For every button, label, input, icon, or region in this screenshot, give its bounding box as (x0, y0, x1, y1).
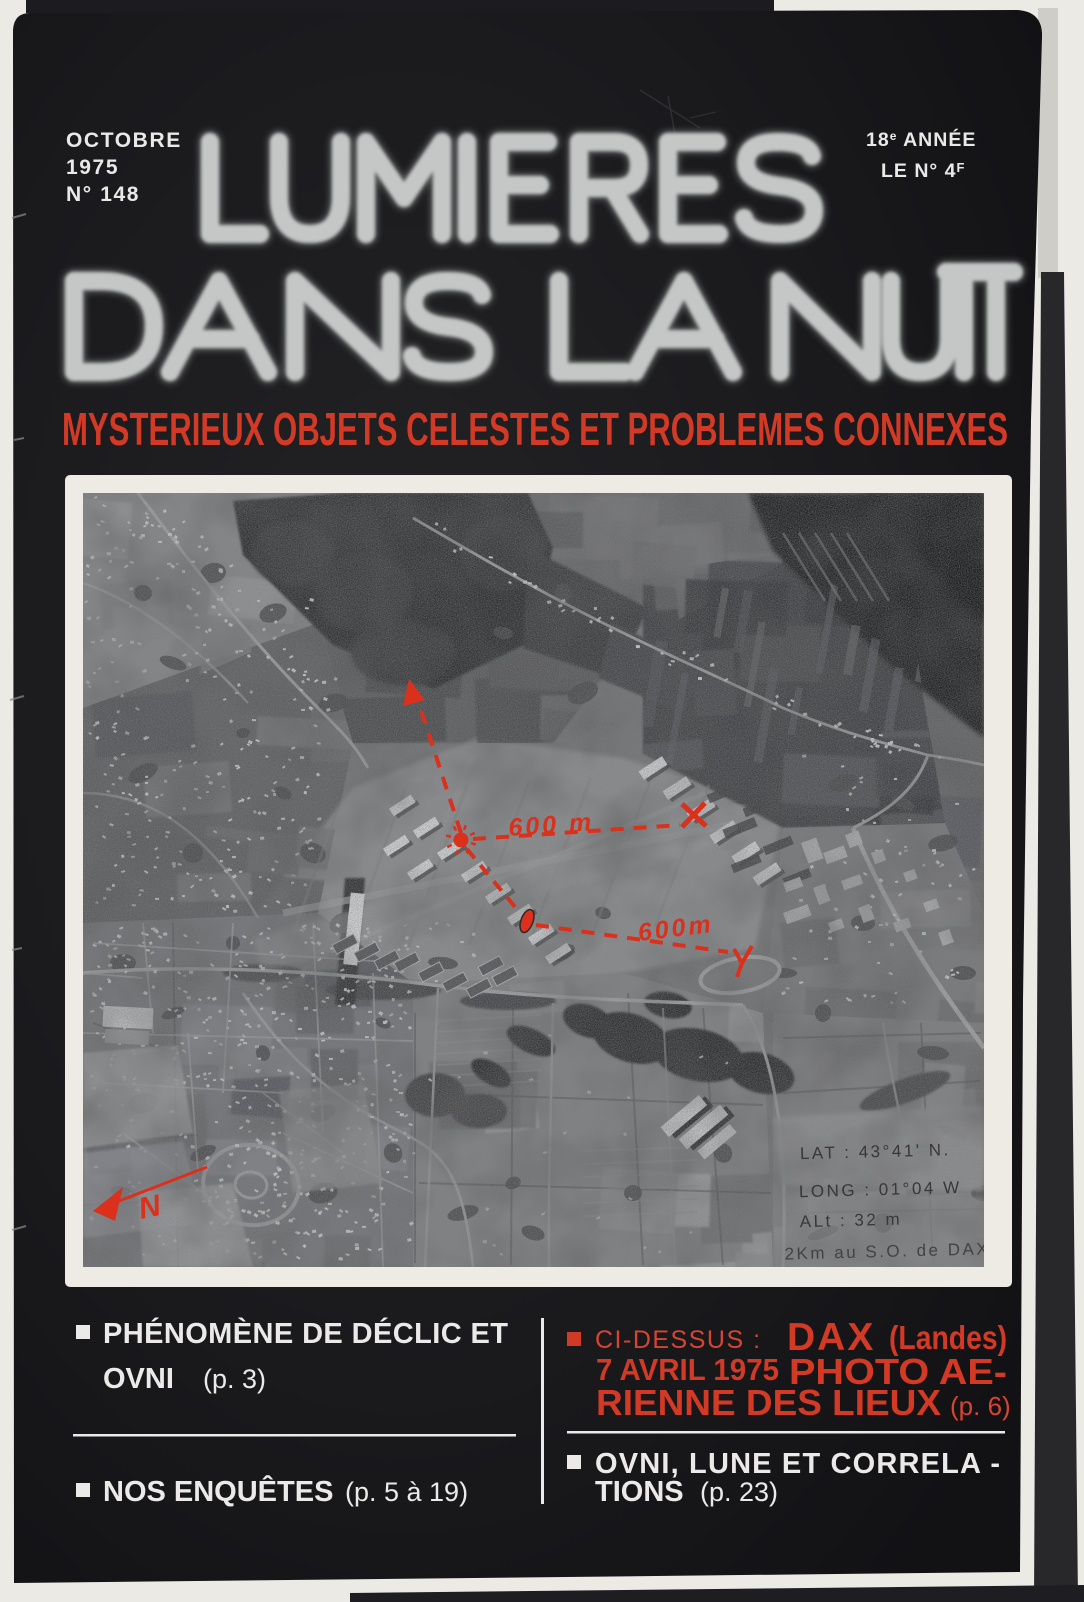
svg-text:(p. 6): (p. 6) (950, 1391, 1011, 1421)
svg-text:CI-DESSUS :: CI-DESSUS : (595, 1326, 762, 1354)
svg-text:NOS ENQUÊTES: NOS ENQUÊTES (103, 1474, 333, 1508)
svg-text:MYSTERIEUX OBJETS CELESTES ET: MYSTERIEUX OBJETS CELESTES ET PROBLEMES … (62, 403, 1008, 455)
svg-text:1975: 1975 (66, 156, 119, 179)
svg-text:OCTOBRE: OCTOBRE (66, 129, 182, 152)
svg-text:600 m: 600 m (507, 808, 595, 842)
svg-text:OVNI: OVNI (103, 1363, 174, 1395)
svg-text:PHÉNOMÈNE DE DÉCLIC ET: PHÉNOMÈNE DE DÉCLIC ET (103, 1316, 508, 1350)
svg-text:(p. 3): (p. 3) (203, 1364, 266, 1394)
svg-text:N° 148: N° 148 (66, 183, 140, 206)
svg-text:LE N° 4F: LE N° 4F (881, 160, 965, 182)
svg-text:18e ANNÉE: 18e ANNÉE (866, 128, 976, 151)
svg-text:TIONS: TIONS (595, 1476, 684, 1508)
svg-text:RIENNE DES LIEUX: RIENNE DES LIEUX (596, 1382, 941, 1423)
svg-text:LAT : 43°41' N.: LAT : 43°41' N. (800, 1140, 951, 1163)
svg-text:ALt : 32 m: ALt : 32 m (799, 1210, 902, 1232)
svg-text:(p. 23): (p. 23) (700, 1477, 778, 1507)
svg-text:(p. 5 à 19): (p. 5 à 19) (345, 1477, 468, 1507)
